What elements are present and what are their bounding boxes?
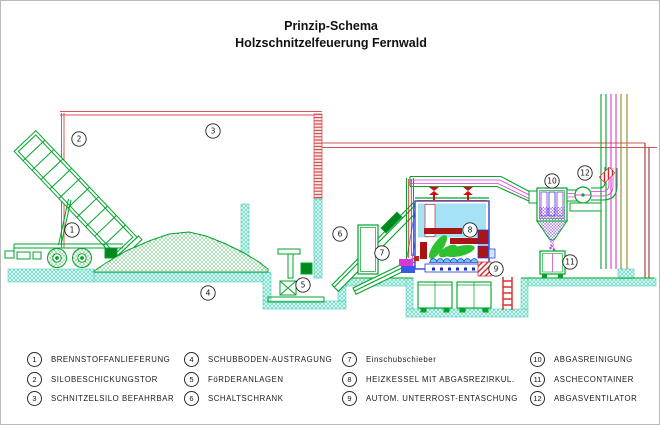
legend-number: 12 bbox=[530, 391, 545, 406]
legend-item-8: 8HEIZKESSEL MIT ABGASREZIRKUL. bbox=[342, 372, 515, 387]
legend-item-1: 1BRENNSTOFFANLIEFERUNG bbox=[27, 352, 170, 367]
legend-label: BRENNSTOFFANLIEFERUNG bbox=[51, 355, 170, 364]
legend-item-7: 7Einschubschieber bbox=[342, 352, 436, 367]
legend-number: 1 bbox=[27, 352, 42, 367]
legend-number: 7 bbox=[342, 352, 357, 367]
schema-page: Prinzip-Schema Holzschnitzelfeuerung Fer… bbox=[0, 0, 660, 425]
legend-number: 10 bbox=[530, 352, 545, 367]
legend-label: HEIZKESSEL MIT ABGASREZIRKUL. bbox=[366, 375, 515, 384]
legend-label: FöRDERANLAGEN bbox=[208, 375, 284, 384]
legend-item-6: 6SCHALTSCHRANK bbox=[184, 391, 283, 406]
legend-number: 4 bbox=[184, 352, 199, 367]
legend-label: AUTOM. UNTERROST-ENTASCHUNG bbox=[366, 394, 518, 403]
legend-item-12: 12ABGASVENTILATOR bbox=[530, 391, 637, 406]
legend-label: SCHNITZELSILO BEFAHRBAR bbox=[51, 394, 174, 403]
legend-item-2: 2SILOBESCHICKUNGSTOR bbox=[27, 372, 158, 387]
legend-item-10: 10ABGASREINIGUNG bbox=[530, 352, 633, 367]
legend-label: ASCHECONTAINER bbox=[554, 375, 634, 384]
legend-number: 11 bbox=[530, 372, 545, 387]
legend-label: SCHALTSCHRANK bbox=[208, 394, 283, 403]
legend-item-4: 4SCHUBBODEN-AUSTRAGUNG bbox=[184, 352, 332, 367]
legend-label: SILOBESCHICKUNGSTOR bbox=[51, 375, 158, 384]
legend-item-11: 11ASCHECONTAINER bbox=[530, 372, 634, 387]
legend-item-3: 3SCHNITZELSILO BEFAHRBAR bbox=[27, 391, 174, 406]
legend-number: 9 bbox=[342, 391, 357, 406]
legend: 1BRENNSTOFFANLIEFERUNG 2SILOBESCHICKUNGS… bbox=[1, 1, 660, 425]
legend-number: 3 bbox=[27, 391, 42, 406]
legend-item-5: 5FöRDERANLAGEN bbox=[184, 372, 284, 387]
legend-item-9: 9AUTOM. UNTERROST-ENTASCHUNG bbox=[342, 391, 518, 406]
legend-label: ABGASREINIGUNG bbox=[554, 355, 633, 364]
legend-number: 2 bbox=[27, 372, 42, 387]
legend-number: 8 bbox=[342, 372, 357, 387]
legend-label: Einschubschieber bbox=[366, 355, 436, 364]
legend-label: ABGASVENTILATOR bbox=[554, 394, 637, 403]
legend-label: SCHUBBODEN-AUSTRAGUNG bbox=[208, 355, 332, 364]
legend-number: 5 bbox=[184, 372, 199, 387]
legend-number: 6 bbox=[184, 391, 199, 406]
